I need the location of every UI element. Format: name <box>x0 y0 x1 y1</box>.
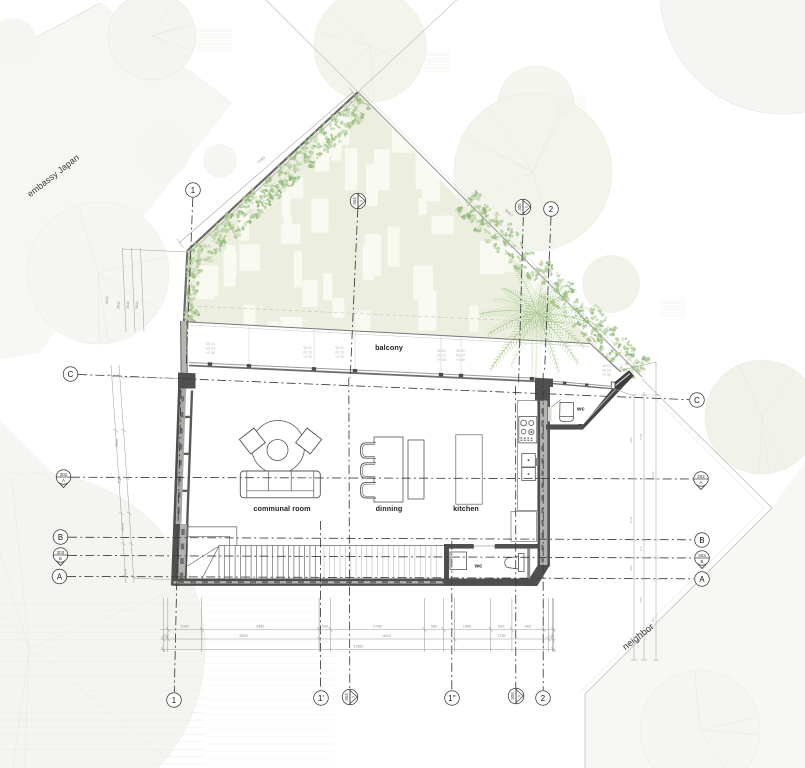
svg-text:3632: 3632 <box>126 301 131 309</box>
svg-text:905: 905 <box>629 437 633 443</box>
svg-text:305: 305 <box>510 692 515 700</box>
svg-text:303: 303 <box>352 197 357 205</box>
svg-text:4500: 4500 <box>239 634 247 638</box>
svg-text:B: B <box>59 556 62 561</box>
svg-text:+0 50: +0 50 <box>602 373 611 377</box>
svg-text:05 10: 05 10 <box>335 351 344 355</box>
svg-text:130: 130 <box>162 634 168 638</box>
svg-text:305: 305 <box>517 203 522 211</box>
svg-text:B: B <box>58 533 63 542</box>
svg-text:3485: 3485 <box>256 625 264 629</box>
svg-text:38 01: 38 01 <box>602 364 611 368</box>
svg-text:05 10: 05 10 <box>303 351 312 355</box>
svg-text:+0 50: +0 50 <box>335 355 344 359</box>
svg-text:302: 302 <box>60 472 68 477</box>
svg-text:3632: 3632 <box>105 296 110 304</box>
svg-text:dinning: dinning <box>376 504 403 513</box>
svg-text:balcony: balcony <box>375 343 403 352</box>
svg-text:A: A <box>699 480 702 485</box>
svg-text:+0 50: +0 50 <box>456 358 465 362</box>
svg-text:B: B <box>699 536 704 545</box>
svg-text:1145: 1145 <box>629 516 633 523</box>
svg-text:303: 303 <box>698 553 706 558</box>
svg-text:38 01: 38 01 <box>206 342 215 346</box>
svg-text:120: 120 <box>548 634 554 638</box>
svg-text:1: 1 <box>172 696 176 705</box>
svg-text:805: 805 <box>629 565 633 571</box>
svg-text:A: A <box>62 478 65 483</box>
svg-text:6742: 6742 <box>651 471 655 478</box>
svg-text:11560: 11560 <box>353 645 363 649</box>
svg-text:630: 630 <box>498 625 504 629</box>
svg-text:05 10: 05 10 <box>456 354 465 358</box>
svg-text:340: 340 <box>322 625 328 629</box>
svg-text:2500: 2500 <box>115 439 120 447</box>
svg-text:B: B <box>700 559 703 564</box>
svg-text:3632: 3632 <box>135 301 140 309</box>
svg-text:1400: 1400 <box>463 625 471 629</box>
svg-text:775: 775 <box>124 569 128 575</box>
svg-text:302: 302 <box>697 474 705 479</box>
svg-text:05 10: 05 10 <box>602 369 611 373</box>
svg-text:2790: 2790 <box>373 625 381 629</box>
svg-text:4186: 4186 <box>639 433 643 440</box>
svg-text:C: C <box>68 370 74 379</box>
svg-text:38 01: 38 01 <box>456 349 465 353</box>
svg-text:1: 1 <box>191 186 195 195</box>
svg-text:1'': 1'' <box>448 694 456 703</box>
svg-text:110: 110 <box>651 617 655 622</box>
svg-text:+0 50: +0 50 <box>206 351 215 355</box>
svg-text:2: 2 <box>549 205 553 214</box>
svg-text:communal room: communal room <box>253 504 310 513</box>
svg-text:+0 50: +0 50 <box>437 358 446 362</box>
svg-text:kitchen: kitchen <box>453 504 479 513</box>
svg-text:1': 1' <box>318 694 324 703</box>
svg-text:303: 303 <box>344 693 349 701</box>
svg-text:38 01: 38 01 <box>335 346 344 350</box>
svg-text:wc: wc <box>576 407 585 413</box>
svg-text:38 01: 38 01 <box>437 349 446 353</box>
svg-text:2790: 2790 <box>497 634 505 638</box>
svg-text:1000: 1000 <box>180 625 188 629</box>
svg-text:3632: 3632 <box>116 301 121 309</box>
svg-text:38 01: 38 01 <box>303 346 312 350</box>
svg-text:1198: 1198 <box>117 476 122 484</box>
svg-text:110: 110 <box>639 546 643 551</box>
svg-text:C: C <box>694 396 700 405</box>
svg-text:05 10: 05 10 <box>437 354 446 358</box>
svg-text:4010: 4010 <box>383 634 391 638</box>
svg-text:2540: 2540 <box>120 523 125 531</box>
svg-text:560: 560 <box>431 625 437 629</box>
svg-text:2: 2 <box>541 694 545 703</box>
svg-text:A: A <box>57 572 63 581</box>
svg-text:A: A <box>699 575 705 584</box>
svg-text:303: 303 <box>57 550 65 555</box>
svg-text:wc: wc <box>474 564 483 570</box>
svg-text:200: 200 <box>639 597 643 603</box>
svg-text:940: 940 <box>525 625 531 629</box>
svg-text:+0 50: +0 50 <box>303 355 312 359</box>
svg-text:05 10: 05 10 <box>206 347 215 351</box>
